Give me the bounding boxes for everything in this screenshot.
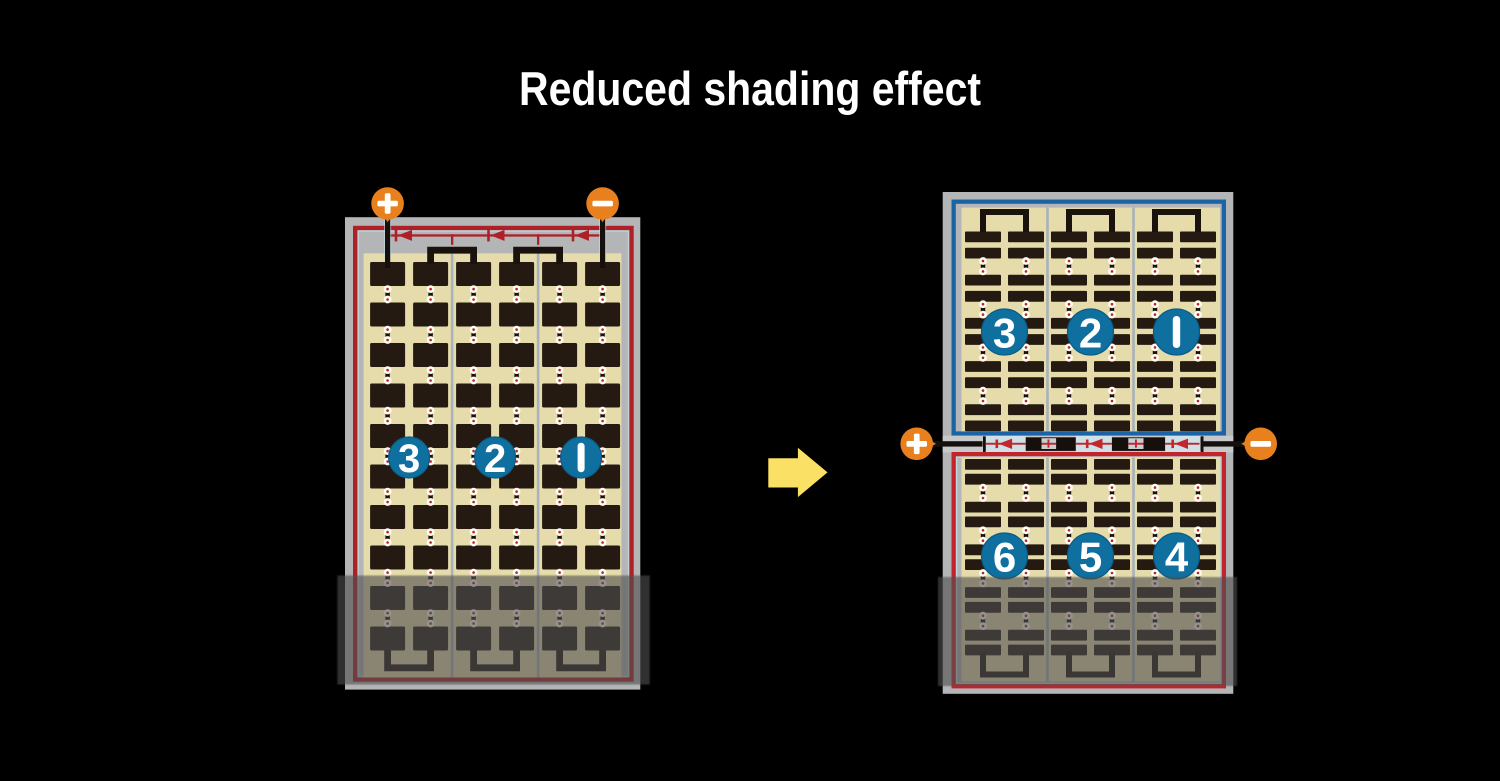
svg-text:4: 4 bbox=[1165, 533, 1189, 580]
svg-text:6: 6 bbox=[993, 533, 1016, 580]
svg-text:5: 5 bbox=[1079, 533, 1102, 580]
svg-text:3: 3 bbox=[993, 309, 1016, 356]
svg-text:3: 3 bbox=[398, 437, 420, 481]
svg-text:2: 2 bbox=[484, 437, 506, 481]
svg-text:2: 2 bbox=[1079, 309, 1102, 356]
svg-text:Reduced shading effect: Reduced shading effect bbox=[519, 62, 981, 115]
